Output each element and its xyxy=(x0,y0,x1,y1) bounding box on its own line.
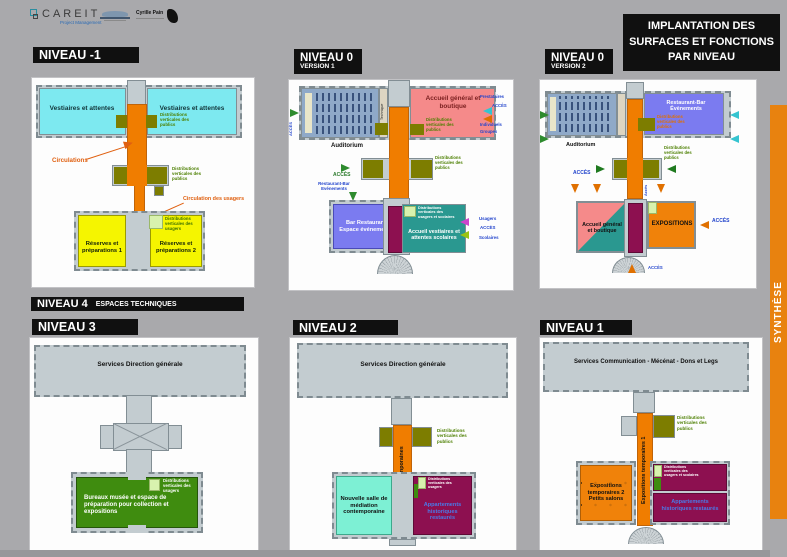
usagers-distribution-box xyxy=(149,479,160,491)
olive-block xyxy=(410,124,424,135)
expositions-temporaires1-label: Expositions temporaires 1 xyxy=(641,418,650,523)
level-title-niveau4: NIVEAU 4 ESPACES TECHNIQUES xyxy=(31,297,244,311)
olive-block xyxy=(363,160,383,178)
auditorium-seats xyxy=(559,96,613,132)
accueil-boutique-zone: Accueil général et boutique xyxy=(576,201,627,253)
dvp-label: Distributions verticales des publics xyxy=(437,428,479,444)
careit-logo-tagline: Project Management xyxy=(60,20,102,25)
shaft-cap xyxy=(391,398,412,425)
dvp-label-top: Distributions verticales des publics xyxy=(657,115,691,130)
usagers-arrow-icon xyxy=(460,218,469,226)
services-label: Services Communication - Mécénat - Dons … xyxy=(554,354,738,372)
synthese-tab: SYNTHÈSE xyxy=(770,105,787,519)
acces-arrow-icon xyxy=(571,184,579,193)
dvp-label-mid: Distributions verticales des publics xyxy=(172,166,214,182)
shaft-cap xyxy=(633,392,655,413)
acces-arrow-icon xyxy=(290,109,299,117)
acces-arrow-icon xyxy=(628,264,636,273)
shaft-cap xyxy=(127,80,146,105)
dvu-label: Distributions verticales des usagers xyxy=(165,217,201,232)
level-title-niveau2: NIVEAU 2 xyxy=(293,320,398,335)
olive-block-small xyxy=(154,186,164,196)
circulation-shaft-mid xyxy=(627,158,643,180)
circulation-shaft xyxy=(389,107,409,206)
circulations-leader-line xyxy=(86,145,129,160)
acces-arrow-icon xyxy=(667,165,676,173)
acces-arrow-icon xyxy=(596,165,605,173)
dvp-label-top: Distributions verticales des publics xyxy=(426,118,462,133)
stair-semicircle xyxy=(377,255,413,274)
level-title-niveau-minus1: NIVEAU -1 xyxy=(33,47,139,63)
circulation-shaft xyxy=(627,99,643,199)
restaurant-bar-label: Restaurant-Bar Évènements xyxy=(658,96,714,116)
shaft-cap xyxy=(388,80,410,107)
plan-niveau0-v1: Technique Accueil général et boutique Di… xyxy=(289,80,513,290)
acces-right-label: ACCÈS xyxy=(492,104,512,109)
plan-niveau-minus1: Vestiaires et attentes Vestiaires et att… xyxy=(32,78,254,287)
services-label: Services Direction générale xyxy=(318,356,488,374)
expositions2-label: Expositions temporaires 2 Petits salons xyxy=(582,478,630,508)
appartements-label: Appartements historiques restaurés xyxy=(416,496,469,528)
acces-right-label: ACCÈS xyxy=(712,219,736,225)
individuels-label: Individuels xyxy=(480,123,512,128)
dvp-label-mid: Distributions verticales des publics xyxy=(435,156,475,171)
dvp-label: Distributions verticales des publics xyxy=(677,415,719,431)
plan-niveau0-v2: Restaurant-Bar Évènements Distributions … xyxy=(540,80,756,288)
plan-niveau2: Services Direction générale Expositions … xyxy=(290,338,516,554)
cyrille-pain-logo-glyph xyxy=(167,9,178,23)
olive-block xyxy=(379,427,393,447)
usagers-distribution-box xyxy=(149,215,163,229)
plan-niveau3: Services Direction générale Distribution… xyxy=(30,338,258,554)
auditorium-seats xyxy=(316,92,375,134)
maroon-shaft xyxy=(628,203,643,253)
olive-block xyxy=(614,160,628,178)
ship-logo-icon xyxy=(98,9,132,25)
groupes-label: Groupes xyxy=(480,130,512,135)
scolaires-label: Scolaires xyxy=(479,235,507,240)
stair-semicircle xyxy=(628,527,664,544)
dvus-label: Distributions verticales des usagers et … xyxy=(664,465,702,478)
olive-block xyxy=(146,115,157,128)
acces-arrow-icon xyxy=(700,221,709,229)
olive-block xyxy=(653,415,675,438)
services-label: Services Direction générale xyxy=(54,356,226,374)
level-title-niveau0-v1: NIVEAU 0 VERSION 1 xyxy=(294,49,362,74)
bureaux-label: Bureaux musée et espace de préparation p… xyxy=(84,495,194,516)
shaft-cap xyxy=(626,82,644,99)
acces-scolaires-label: ACCÈS xyxy=(480,225,504,230)
reserves-2-label: Réserves et préparations 2 xyxy=(154,236,198,260)
circulation-shaft-mid xyxy=(127,165,147,186)
acces-arrow-icon xyxy=(730,111,739,119)
reserves-1-label: Réserves et préparations 1 xyxy=(80,236,124,260)
dvu-label: Distributions verticales des usagers xyxy=(163,479,197,494)
acces-arrow-icon xyxy=(341,164,350,172)
synthese-tab-label: SYNTHÈSE xyxy=(773,105,785,519)
page-bottom-strip xyxy=(0,550,770,557)
olive-block xyxy=(116,115,127,128)
roof-center xyxy=(113,423,169,451)
acces-vertical-label: Accès xyxy=(644,181,651,199)
usagers-label: Usagers xyxy=(479,216,505,221)
mediation-label: Nouvelle salle de médiation contemporain… xyxy=(339,488,389,524)
cyrille-pain-logo-text: Cyrille Pain xyxy=(136,11,163,17)
olive-block xyxy=(114,167,127,184)
acces-arrow-icon xyxy=(540,111,549,119)
accueil-boutique-label: Accueil général et boutique xyxy=(420,92,486,114)
scolaires-arrow-icon xyxy=(460,231,469,239)
accueil-vestiaires-label: Accueil vestiaires et attentes scolaires xyxy=(406,220,462,250)
stage-strip xyxy=(305,93,312,133)
gray-block xyxy=(621,416,637,436)
acces-mid-label: ACCÈS xyxy=(573,171,597,177)
plan-niveau1: Services Communication - Mécénat - Dons … xyxy=(540,338,762,554)
technique-strip xyxy=(617,93,626,136)
olive-block xyxy=(375,123,388,135)
shaft-stub xyxy=(389,539,416,546)
usagers-distribution-box xyxy=(418,477,426,489)
stage-strip xyxy=(550,97,556,131)
acces-mid-label: ACCÈS xyxy=(333,173,361,179)
shaft-notch xyxy=(128,472,146,480)
acces-bottom-label: ACCÈS xyxy=(648,266,672,271)
olive-block xyxy=(643,160,659,178)
circulation-shaft-mid xyxy=(389,158,409,180)
usagers-distribution-box xyxy=(404,206,416,217)
accueil-boutique-label: Accueil général et boutique xyxy=(581,213,623,243)
usagers-distribution-box xyxy=(654,465,662,477)
level-title-niveau0-v2: NIVEAU 0 VERSION 2 xyxy=(545,49,613,74)
dvp-label-mid: Distributions verticales des publics xyxy=(664,146,702,161)
cyrille-pain-logo: Cyrille Pain xyxy=(136,9,180,27)
usagers-distribution-box xyxy=(648,202,657,214)
auditorium-label: Auditorium xyxy=(566,142,618,148)
olive-block xyxy=(412,427,432,447)
vestiaires-left-label: Vestiaires et attentes xyxy=(44,98,120,120)
acces-left-label: ACCÈS xyxy=(289,117,296,141)
restaurant-bar-label: Restaurant-Bar Evénements xyxy=(307,181,361,191)
acces-arrow-icon xyxy=(730,135,739,143)
olive-block xyxy=(638,118,655,131)
appartements-label: Appartements historiques restaurés xyxy=(660,489,720,523)
shaft-notch xyxy=(128,525,146,533)
prestataires-label: Prestataires xyxy=(480,95,512,100)
dvu-label: Distributions verticales des usagers xyxy=(428,477,458,490)
circulation-usagers-label: Circulation des usagers xyxy=(183,196,255,202)
acces-arrow-icon xyxy=(593,184,601,193)
olive-block xyxy=(411,160,432,178)
careit-logo-icon2 xyxy=(33,14,38,19)
level-title-niveau3: NIVEAU 3 xyxy=(32,319,138,335)
acces-arrow-icon xyxy=(483,107,492,115)
acces-arrow-icon xyxy=(657,184,665,193)
olive-block xyxy=(147,167,167,184)
document-page: CAREIT Project Management Cyrille Pain I… xyxy=(0,0,787,557)
level-title-niveau1: NIVEAU 1 xyxy=(540,320,632,335)
expositions-label: EXPOSITIONS xyxy=(650,216,694,234)
dvp-label-top: Distributions verticales des publics xyxy=(160,112,200,128)
auditorium-label: Auditorium xyxy=(331,143,391,150)
dvus-label: Distributions verticales des usagers et … xyxy=(418,206,458,219)
acces-arrow-icon xyxy=(540,135,549,143)
page-title: IMPLANTATION DES SURFACES ET FONCTIONS P… xyxy=(623,14,780,71)
